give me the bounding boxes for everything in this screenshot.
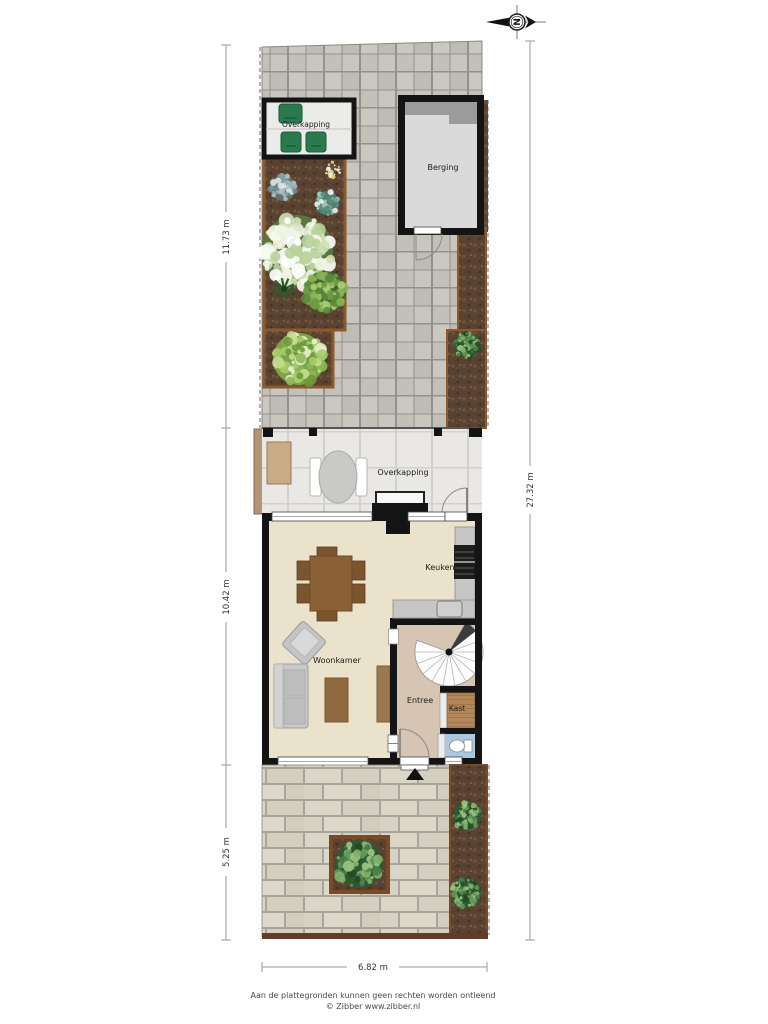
compass: N [486,5,546,39]
shed-shelf-side [449,115,477,124]
doormat-back [376,492,424,504]
label-kast: Kast [449,704,465,713]
dim-total: 27.32 m [526,472,536,507]
dining-chair [297,561,311,580]
shed-shelf-top [405,102,477,115]
dim-back-garden: 11.73 m [222,219,232,254]
dining-chair [297,584,311,603]
house [262,503,483,766]
floorplan-svg: 11.73 m 10.42 m 5.25 m 27.32 m 6.82 m N … [0,0,768,1024]
footer-disclaimer: Aan de plattegronden kunnen geen rechten… [250,991,495,1000]
interior-door [389,629,399,644]
coffee-table [325,678,348,722]
label-berging: Berging [427,163,458,172]
footer: Aan de plattegronden kunnen geen rechten… [250,991,495,1011]
dining-chair [351,584,365,603]
toilet-tank [464,740,472,752]
toilet-room [438,734,475,758]
terrace-post [263,428,273,437]
sink [437,601,462,617]
dim-house: 10.42 m [222,579,232,614]
label-woonkamer: Woonkamer [313,656,361,665]
garden-chair-icon [281,132,301,152]
dining-table [310,556,352,611]
sideboard [377,666,390,722]
dim-width: 6.82 m [358,963,388,973]
front-edge [262,933,488,939]
back-garden [256,41,488,428]
terrace-table [319,451,357,503]
closet-wall-top [440,686,475,693]
dining-chair [351,561,365,580]
sofa [274,664,308,728]
dining-chair [317,610,337,621]
north-arrow-icon [486,18,510,27]
label-entree: Entree [407,696,433,705]
closet-wall-bottom [440,728,475,734]
terrace-floor [262,428,482,515]
terrace-chair [356,458,367,496]
terrace-post [434,428,442,436]
label-overkapping-top: Overkapping [282,120,330,129]
border-strip-right-upper [458,228,486,330]
front-garden [262,765,489,939]
floorplan-page: 11.73 m 10.42 m 5.25 m 27.32 m 6.82 m N … [0,0,768,1024]
toilet-wall-left [438,734,445,758]
dim-front-garden: 5.25 m [222,837,232,867]
compass-north-letter: N [513,18,523,26]
terrace-post [309,428,317,436]
wall-left [262,513,269,765]
label-keuken: Keuken [425,563,454,572]
footer-credit: © Zibber www.zibber.nl [326,1002,420,1011]
window-back-large [272,512,372,521]
counter-bottom [393,600,475,618]
wall-right [475,513,482,765]
closet-wall-left [440,693,447,728]
rear-terrace [254,428,482,515]
wall-keuken-entree [390,618,475,625]
window-back-small [408,512,445,521]
shed-door [414,227,441,234]
terrace-bench [267,442,291,484]
backdoor-opening [445,512,467,521]
chimney-tab [386,521,410,534]
front-border-strip [450,765,487,937]
toilet-bowl [450,740,465,752]
label-overkapping-mid: Overkapping [377,468,428,477]
terrace-post [469,428,482,437]
garden-chair-icon [306,132,326,152]
